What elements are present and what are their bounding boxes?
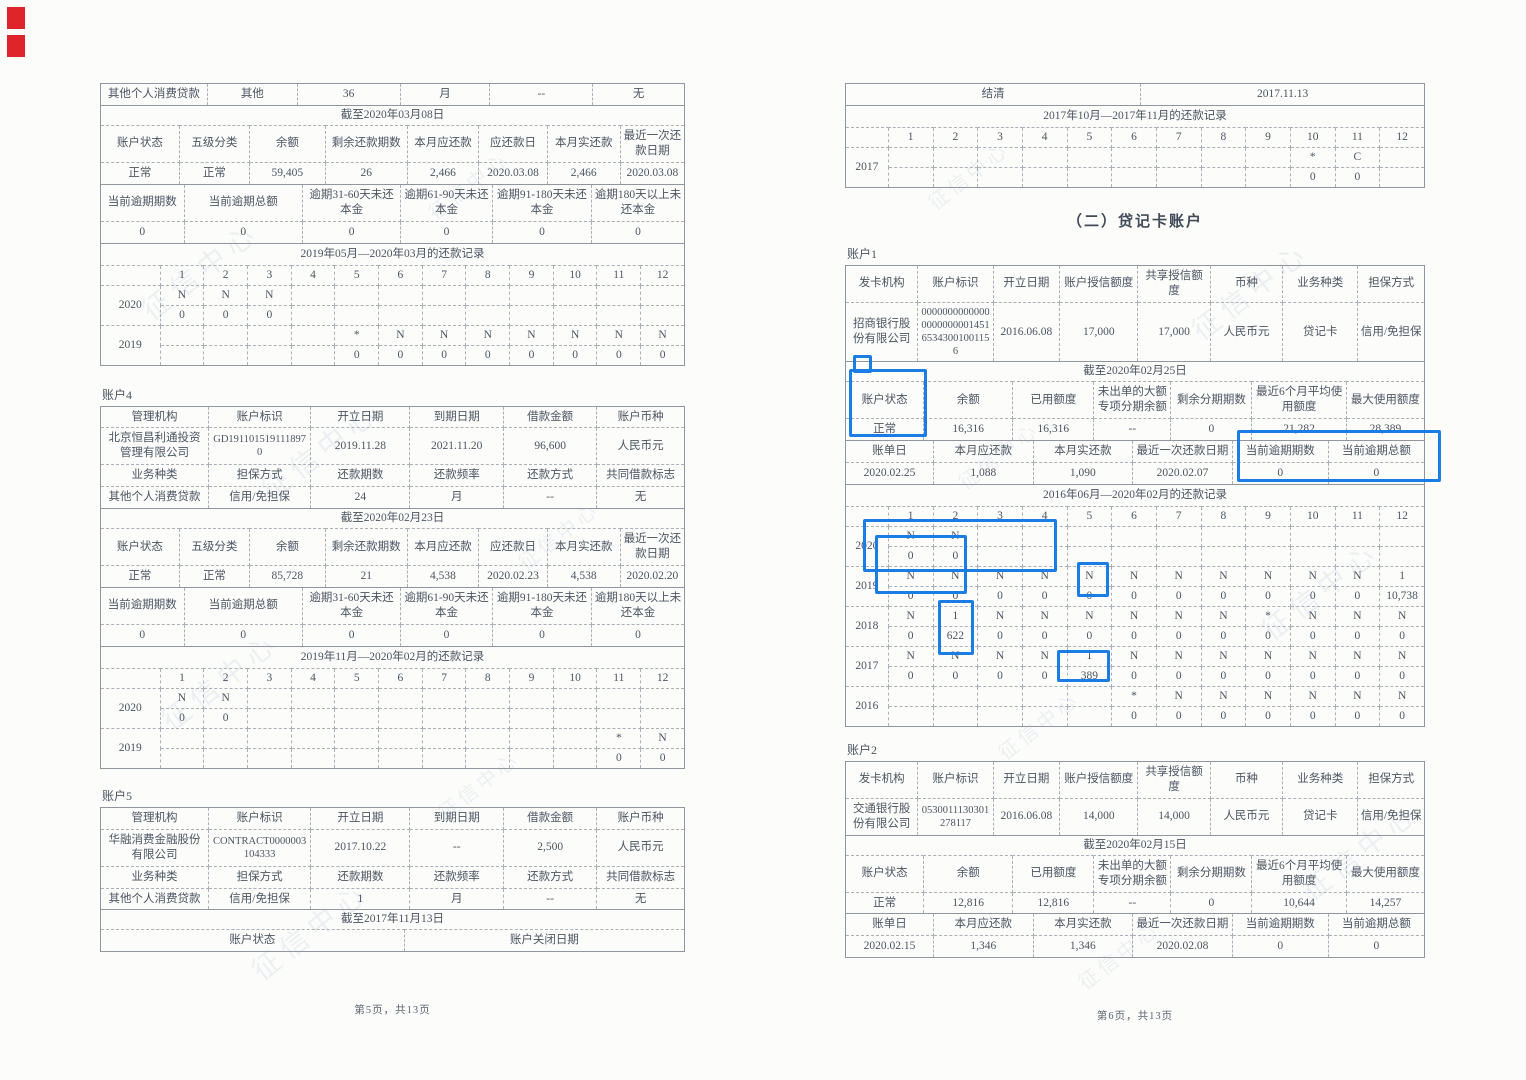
table-cell: 本月实还款 — [1033, 914, 1133, 936]
table-cell: 最近一次还款日期 — [620, 529, 684, 566]
table-cell: -- — [490, 84, 593, 106]
table-cell — [1112, 167, 1157, 187]
table-cell: 贷记卡 — [1283, 798, 1358, 835]
table-cell: 余额 — [924, 382, 1013, 419]
table-cell — [1246, 546, 1291, 566]
table-cell: 0 — [933, 546, 978, 566]
table-cell — [247, 325, 291, 345]
table-cell — [422, 285, 466, 305]
table-cell: 0 — [1022, 626, 1067, 646]
table-cell: 9 — [1246, 127, 1291, 147]
table-cell — [101, 265, 161, 285]
table-cell — [1022, 167, 1067, 187]
table-cell: 6 — [379, 668, 423, 688]
table-cell — [1290, 546, 1335, 566]
table-cell — [379, 728, 423, 748]
table-cell: 0 — [1201, 666, 1246, 686]
table-cell: 0 — [247, 305, 291, 325]
account1-repayment-record-table: 2016年06月—2020年02月的还款记录123456789101112202… — [845, 484, 1425, 727]
table-cell: 当前逾期期数 — [1232, 914, 1328, 936]
table-cell: -- — [503, 888, 596, 910]
table-cell — [888, 147, 933, 167]
table-cell — [510, 708, 554, 728]
table-cell: 共同借款标志 — [597, 465, 685, 487]
table-cell — [160, 345, 204, 365]
table-cell: 截至2020年03月08日 — [101, 105, 685, 125]
table-cell — [1067, 546, 1112, 566]
table-cell: 0 — [1335, 666, 1380, 686]
table-cell: N — [379, 325, 423, 345]
account1-status-table: 截至2020年02月25日账户状态余额已用额度未出单的大额专项分期余额剩余分期期… — [845, 361, 1425, 441]
table-cell: 0 — [1171, 892, 1252, 914]
table-cell: 10 — [1290, 506, 1335, 526]
table-cell: 逾期31-60天未还本金 — [303, 587, 401, 624]
table-cell: 交通银行股份有限公司 — [846, 798, 918, 835]
table-cell — [1290, 526, 1335, 546]
table-cell — [933, 706, 978, 726]
table-cell — [641, 305, 685, 325]
table-cell — [291, 285, 335, 305]
table-cell: -- — [410, 829, 503, 866]
table-cell: 2017 — [846, 646, 889, 686]
table-cell — [335, 285, 379, 305]
table-cell: 0 — [492, 221, 591, 243]
table-cell: 1 — [160, 668, 204, 688]
table-cell: N — [204, 688, 248, 708]
table-cell: CONTRACT0000003104333 — [209, 829, 311, 866]
table-cell: 2020.03.08 — [479, 162, 547, 184]
table-cell: 0 — [1232, 463, 1328, 485]
account4-repayment-record-table: 2019年11月—2020年02月的还款记录123456789101112202… — [100, 646, 685, 769]
account1-bill-table: 账单日本月应还款本月实还款最近一次还款日期当前逾期期数当前逾期总额2020.02… — [845, 440, 1425, 485]
table-cell: 1 — [933, 606, 978, 626]
table-cell: 0 — [492, 624, 591, 646]
table-cell: N — [1380, 686, 1425, 706]
table-cell — [553, 708, 597, 728]
table-cell: 10 — [553, 668, 597, 688]
table-cell: 0 — [978, 666, 1023, 686]
table-cell — [553, 285, 597, 305]
table-cell: 逾期180天以上未还本金 — [592, 587, 685, 624]
table-cell: 正常 — [101, 566, 180, 588]
table-cell: 币种 — [1210, 761, 1282, 798]
table-cell: 五级分类 — [179, 125, 249, 162]
table-cell: 0 — [335, 345, 379, 365]
table-cell: 逾期91-180天未还本金 — [492, 184, 591, 221]
table-cell: N — [1112, 566, 1157, 586]
table-cell: 币种 — [1210, 265, 1282, 302]
table-cell: 5 — [1067, 506, 1112, 526]
table-cell: 0 — [933, 666, 978, 686]
table-cell: 0 — [1335, 586, 1380, 606]
table-cell — [641, 285, 685, 305]
table-cell: 0 — [1022, 586, 1067, 606]
table-cell: 当前逾期总额 — [184, 587, 303, 624]
table-cell: 还款期数 — [311, 465, 410, 487]
table-cell: 人民币元 — [597, 829, 685, 866]
table-cell: N — [978, 606, 1023, 626]
table-cell: * — [1290, 147, 1335, 167]
account4-overdue-table: 当前逾期期数当前逾期总额逾期31-60天未还本金逾期61-90天未还本金逾期91… — [100, 587, 685, 647]
loan-other-consumer-summary-table: 其他个人消费贷款其他36月--无 — [100, 83, 685, 106]
table-cell: 2016年06月—2020年02月的还款记录 — [846, 484, 1425, 506]
table-cell — [1156, 167, 1201, 187]
table-cell: N — [1022, 566, 1067, 586]
table-cell: 逾期180天以上未还本金 — [592, 184, 685, 221]
table-cell: 剩余还款期数 — [325, 529, 407, 566]
table-cell — [1246, 147, 1291, 167]
redaction-mark — [7, 35, 25, 57]
table-cell: 17,000 — [1138, 302, 1210, 362]
table-cell: 剩余分期期数 — [1171, 855, 1252, 892]
table-cell — [510, 305, 554, 325]
table-cell — [204, 728, 248, 748]
table-cell: 截至2020年02月15日 — [846, 835, 1425, 855]
table-cell: 0 — [1201, 626, 1246, 646]
table-cell: 剩余还款期数 — [325, 125, 407, 162]
table-cell — [1067, 686, 1112, 706]
table-cell — [466, 708, 510, 728]
table-cell: 7 — [422, 668, 466, 688]
table-cell: 正常 — [846, 419, 924, 441]
table-cell: 业务种类 — [1283, 265, 1358, 302]
table-cell — [422, 728, 466, 748]
table-cell — [291, 325, 335, 345]
table-cell: * — [1246, 606, 1291, 626]
table-cell — [1201, 167, 1246, 187]
table-cell: 4 — [1022, 506, 1067, 526]
table-cell: 5 — [1067, 127, 1112, 147]
table-cell: N — [888, 566, 933, 586]
credit-card-section-title: （二）贷记卡账户 — [845, 210, 1425, 231]
table-cell — [422, 305, 466, 325]
table-cell: 账户状态 — [846, 855, 924, 892]
table-cell: 2,466 — [547, 162, 620, 184]
table-cell: 3 — [978, 127, 1023, 147]
account2-label: 账户2 — [847, 741, 1425, 758]
table-cell: 7 — [422, 265, 466, 285]
table-cell: N — [933, 646, 978, 666]
table-cell: 逾期91-180天未还本金 — [492, 587, 591, 624]
table-cell: 2018 — [846, 606, 889, 646]
loan3-status-table: 截至2020年03月08日账户状态五级分类余额剩余还款期数本月应还款应还款日本月… — [100, 105, 685, 185]
table-cell: 2020 — [846, 526, 889, 566]
table-cell: 本月应还款 — [934, 914, 1034, 936]
table-cell: 0 — [184, 624, 303, 646]
table-cell: N — [1201, 566, 1246, 586]
table-cell: 账户状态 — [101, 125, 180, 162]
table-cell: 0 — [466, 345, 510, 365]
table-cell — [933, 147, 978, 167]
table-cell: 622 — [933, 626, 978, 646]
table-cell: 余额 — [249, 125, 325, 162]
table-cell — [466, 305, 510, 325]
table-cell: 2020.02.20 — [620, 566, 684, 588]
table-cell: 2 — [933, 127, 978, 147]
table-cell: 0 — [1232, 936, 1328, 958]
table-cell — [1022, 147, 1067, 167]
table-cell: 其他个人消费贷款 — [101, 84, 208, 106]
table-cell: 3 — [978, 506, 1023, 526]
table-cell: 本月实还款 — [1033, 441, 1133, 463]
table-cell — [597, 688, 641, 708]
table-cell: 4,538 — [407, 566, 479, 588]
table-cell — [204, 345, 248, 365]
table-cell: N — [1335, 686, 1380, 706]
table-cell: 0 — [888, 666, 933, 686]
table-cell — [466, 728, 510, 748]
table-cell: N — [933, 526, 978, 546]
table-cell: 2019年11月—2020年02月的还款记录 — [101, 646, 685, 668]
table-cell: 借款金额 — [503, 406, 596, 428]
table-cell: 应还款日 — [479, 529, 547, 566]
table-cell: 信用/免担保 — [209, 888, 311, 910]
table-cell: 本月应还款 — [934, 441, 1034, 463]
table-cell: 0 — [1156, 706, 1201, 726]
table-cell: 0 — [1201, 586, 1246, 606]
table-cell: 已用额度 — [1013, 382, 1094, 419]
table-cell — [247, 688, 291, 708]
table-cell: 担保方式 — [1358, 761, 1425, 798]
table-cell: 当前逾期期数 — [1232, 441, 1328, 463]
table-cell: 当前逾期总额 — [184, 184, 303, 221]
table-cell: N — [1201, 646, 1246, 666]
table-cell: 2019年05月—2020年03月的还款记录 — [101, 243, 685, 265]
table-cell: 0 — [1171, 419, 1252, 441]
table-cell: 业务种类 — [101, 465, 209, 487]
table-cell: 0 — [1328, 463, 1424, 485]
table-cell: 3 — [247, 668, 291, 688]
table-cell — [1201, 546, 1246, 566]
table-cell: 0 — [1335, 706, 1380, 726]
table-cell: N — [1246, 646, 1291, 666]
table-cell: 0 — [1201, 706, 1246, 726]
table-cell: 人民币元 — [1210, 798, 1282, 835]
table-cell: 账户标识 — [209, 807, 311, 829]
table-cell — [1246, 167, 1291, 187]
table-cell: N — [1246, 686, 1291, 706]
table-cell: 21 — [325, 566, 407, 588]
table-cell: 10 — [553, 265, 597, 285]
table-cell: 2 — [933, 506, 978, 526]
table-cell: 3 — [247, 265, 291, 285]
table-cell: 2020.02.08 — [1133, 936, 1233, 958]
table-cell: 96,600 — [503, 428, 596, 465]
table-cell: N — [978, 566, 1023, 586]
table-cell: 人民币元 — [1210, 302, 1282, 362]
table-cell: N — [1022, 646, 1067, 666]
table-cell — [291, 688, 335, 708]
table-cell — [1380, 546, 1425, 566]
table-cell — [1380, 167, 1425, 187]
loan3-repayment-record-table: 2019年05月—2020年03月的还款记录123456789101112202… — [100, 243, 685, 366]
table-cell: 14,000 — [1138, 798, 1210, 835]
table-cell: 账户标识 — [918, 265, 993, 302]
table-cell: 2016.06.08 — [993, 302, 1060, 362]
table-cell — [335, 748, 379, 768]
table-cell: 0 — [888, 546, 933, 566]
table-cell — [1022, 546, 1067, 566]
table-cell — [247, 728, 291, 748]
table-cell: 最近6个月平均使用额度 — [1252, 382, 1346, 419]
table-cell: 2019.11.28 — [311, 428, 410, 465]
table-cell — [888, 706, 933, 726]
account2-status-table: 截至2020年02月15日账户状态余额已用额度未出单的大额专项分期余额剩余分期期… — [845, 835, 1425, 915]
table-cell: 17,000 — [1060, 302, 1138, 362]
table-cell: 0 — [1290, 706, 1335, 726]
table-cell: 2,466 — [407, 162, 479, 184]
table-cell — [379, 305, 423, 325]
table-cell: 剩余分期期数 — [1171, 382, 1252, 419]
table-cell: 0 — [641, 748, 685, 768]
table-cell: 1 — [1067, 646, 1112, 666]
table-cell: N — [1380, 606, 1425, 626]
table-cell: N — [204, 285, 248, 305]
table-cell: 其他 — [207, 84, 297, 106]
table-cell: 0 — [160, 305, 204, 325]
table-cell — [379, 748, 423, 768]
table-cell: 0 — [422, 345, 466, 365]
table-cell: 0 — [401, 624, 493, 646]
table-cell: 2020.02.07 — [1133, 463, 1233, 485]
table-cell: 2 — [204, 265, 248, 285]
table-cell: 16,316 — [1013, 419, 1094, 441]
table-cell: N — [1246, 566, 1291, 586]
table-cell — [247, 708, 291, 728]
table-cell: 1 — [311, 888, 410, 910]
table-cell — [597, 285, 641, 305]
table-cell — [978, 526, 1023, 546]
table-cell: 最近一次还款日期 — [1133, 441, 1233, 463]
table-cell: 其他个人消费贷款 — [101, 888, 209, 910]
table-cell: 账户币种 — [597, 807, 685, 829]
table-cell: 0 — [204, 305, 248, 325]
table-cell: 24 — [311, 487, 410, 509]
table-cell: 账户标识 — [918, 761, 993, 798]
table-cell: 共同借款标志 — [597, 866, 685, 888]
table-cell: N — [247, 285, 291, 305]
table-cell: 贷记卡 — [1283, 302, 1358, 362]
table-cell: 管理机构 — [101, 406, 209, 428]
table-cell: N — [888, 606, 933, 626]
table-cell: 0 — [597, 345, 641, 365]
table-cell: 0 — [1380, 706, 1425, 726]
table-cell — [247, 748, 291, 768]
table-cell: 担保方式 — [209, 866, 311, 888]
table-cell: 2020.02.25 — [846, 463, 934, 485]
table-cell: 账户状态 — [846, 382, 924, 419]
table-cell: N — [1156, 606, 1201, 626]
table-cell — [291, 305, 335, 325]
table-cell — [933, 686, 978, 706]
table-cell: 0 — [379, 345, 423, 365]
table-cell: 本月应还款 — [407, 125, 479, 162]
table-cell — [422, 688, 466, 708]
table-cell — [978, 546, 1023, 566]
table-cell: 1 — [1380, 566, 1425, 586]
table-cell: 0 — [1290, 167, 1335, 187]
table-cell: 最近一次还款日期 — [1133, 914, 1233, 936]
table-cell: 9 — [1246, 506, 1291, 526]
loan3-overdue-table: 当前逾期期数当前逾期总额逾期31-60天未还本金逾期61-90天未还本金逾期91… — [100, 184, 685, 244]
table-cell: N — [1022, 606, 1067, 626]
table-cell — [204, 748, 248, 768]
table-cell: * — [597, 728, 641, 748]
table-cell: 1 — [888, 127, 933, 147]
table-cell: N — [1290, 646, 1335, 666]
table-cell: 12 — [641, 265, 685, 285]
table-cell: 12 — [1380, 506, 1425, 526]
table-cell: 0 — [1380, 666, 1425, 686]
table-cell: 余额 — [924, 855, 1013, 892]
table-cell: 2,500 — [503, 829, 596, 866]
table-cell — [553, 728, 597, 748]
table-cell: 信用/免担保 — [209, 487, 311, 509]
table-cell — [291, 728, 335, 748]
table-cell: 10 — [1290, 127, 1335, 147]
table-cell: 0 — [1290, 626, 1335, 646]
table-cell: 2017年10月—2017年11月的还款记录 — [846, 105, 1425, 127]
table-cell: 12 — [1380, 127, 1425, 147]
table-cell — [597, 305, 641, 325]
table-cell: 信用/免担保 — [1358, 302, 1425, 362]
table-cell — [933, 167, 978, 187]
table-cell: 开立日期 — [993, 265, 1060, 302]
table-cell: 担保方式 — [209, 465, 311, 487]
table-cell — [1067, 167, 1112, 187]
table-cell: 11 — [597, 265, 641, 285]
table-cell: 2020 — [101, 285, 161, 325]
table-cell: 还款方式 — [503, 866, 596, 888]
table-cell: 还款期数 — [311, 866, 410, 888]
table-cell: 2017.10.22 — [311, 829, 410, 866]
table-cell: 14,000 — [1060, 798, 1138, 835]
table-cell: 0 — [1112, 586, 1157, 606]
table-cell — [978, 167, 1023, 187]
table-cell: N — [1380, 646, 1425, 666]
table-cell: 账单日 — [846, 441, 934, 463]
table-cell — [335, 688, 379, 708]
credit-report-page-5: 其他个人消费贷款其他36月--无 截至2020年03月08日账户状态五级分类余额… — [100, 84, 685, 952]
table-cell — [1022, 686, 1067, 706]
table-cell: 4 — [1022, 127, 1067, 147]
table-cell: 月 — [410, 888, 503, 910]
table-cell — [160, 748, 204, 768]
table-cell — [888, 686, 933, 706]
table-cell: 1 — [160, 265, 204, 285]
table-cell: 当前逾期总额 — [1328, 441, 1424, 463]
table-cell: 0 — [303, 624, 401, 646]
table-cell: 开立日期 — [311, 406, 410, 428]
table-cell: 0530011130301278117 — [918, 798, 993, 835]
table-cell: 7 — [1156, 506, 1201, 526]
table-cell: N — [1290, 606, 1335, 626]
table-cell: 0 — [1156, 586, 1201, 606]
table-cell: 当前逾期期数 — [101, 184, 185, 221]
table-cell: 0 — [1246, 706, 1291, 726]
table-cell: 5 — [335, 668, 379, 688]
table-cell: 共享授信额度 — [1138, 265, 1210, 302]
table-cell — [1067, 526, 1112, 546]
table-cell: 0 — [1067, 586, 1112, 606]
account4-status-table: 截至2020年02月23日账户状态五级分类余额剩余还款期数本月应还款应还款日本月… — [100, 508, 685, 588]
table-cell — [553, 305, 597, 325]
table-cell: 0 — [1335, 626, 1380, 646]
table-cell: 截至2020年02月25日 — [846, 362, 1425, 382]
table-cell: 最近6个月平均使用额度 — [1252, 855, 1346, 892]
table-cell: 开立日期 — [993, 761, 1060, 798]
table-cell — [1067, 706, 1112, 726]
